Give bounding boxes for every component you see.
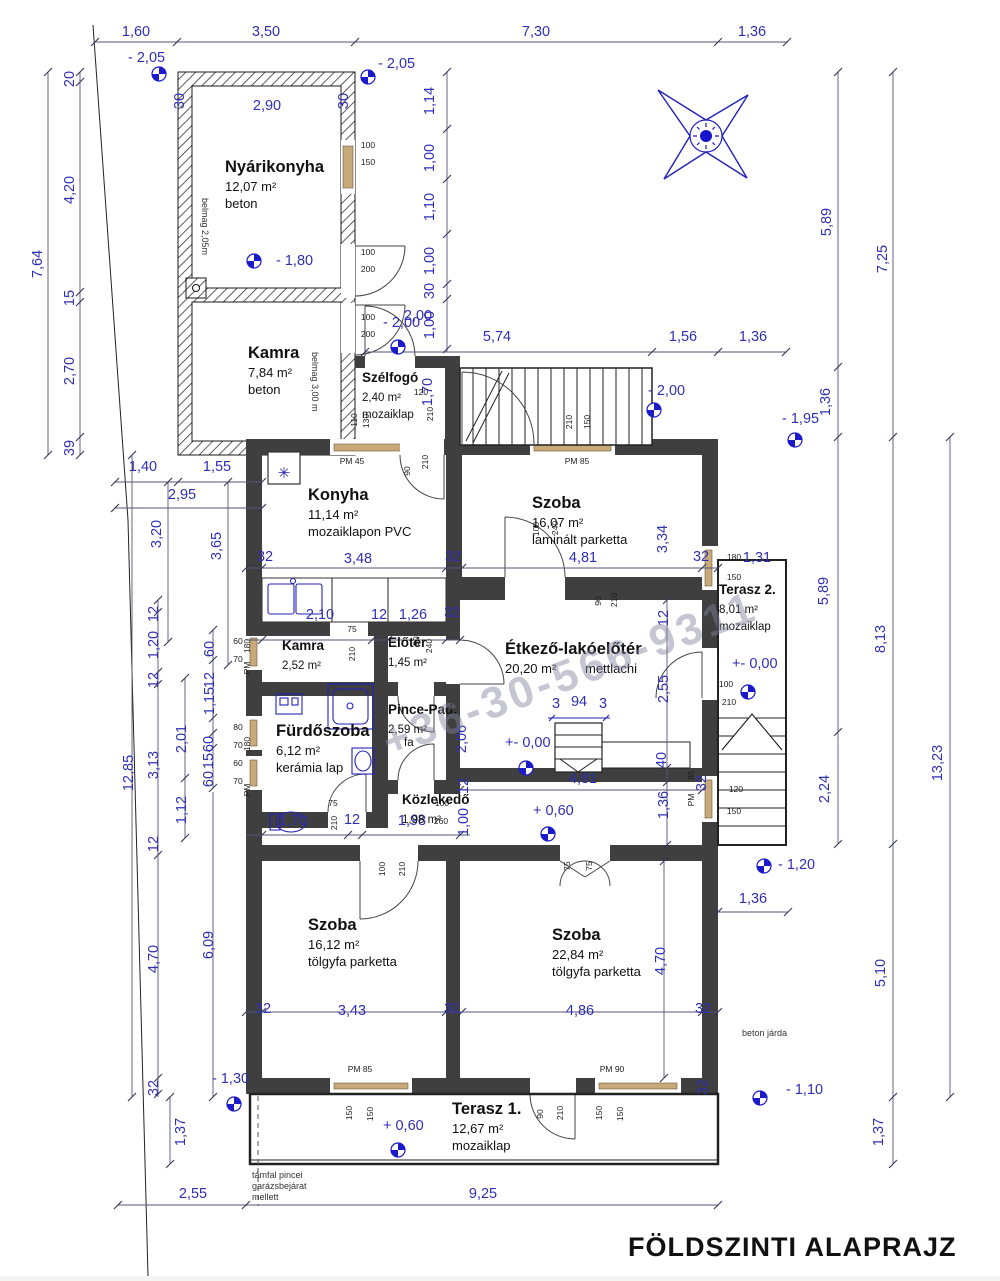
dim-label: 32 bbox=[444, 1001, 460, 1017]
opening-size-label: PM bbox=[242, 662, 252, 675]
dim-label: 1,36 bbox=[818, 388, 834, 416]
opening-size-label: 150 bbox=[727, 806, 741, 816]
level-label: + 0,60 bbox=[533, 803, 574, 819]
room-floor: mozaiklap bbox=[362, 409, 414, 421]
dim-label: 2,01 bbox=[174, 725, 190, 753]
opening-size-label: 75 bbox=[584, 861, 594, 871]
dim-label: 1,15 bbox=[202, 687, 218, 715]
dim-label: 20 bbox=[62, 71, 78, 87]
north-compass-icon bbox=[658, 90, 748, 179]
room-floor: kerámia lap bbox=[276, 760, 343, 775]
dim-label: 1,37 bbox=[173, 1118, 189, 1146]
opening-size-label: 120 bbox=[414, 387, 428, 397]
dim-label: 2,10 bbox=[306, 607, 334, 623]
dim-label: 32 bbox=[257, 549, 273, 565]
dim-label: 1,36 bbox=[739, 329, 767, 345]
room-label: Nyárikonyha12,07 m²beton bbox=[225, 158, 325, 211]
dim-label: 12 bbox=[344, 812, 360, 828]
note-text: belmag 2,05m bbox=[200, 198, 210, 255]
room-label: Szélfogó2,40 m²mozaiklap bbox=[362, 370, 418, 421]
dim-label: 12 bbox=[371, 607, 387, 623]
dim-label: 2,70 bbox=[62, 357, 78, 385]
room-name: Előtér bbox=[388, 635, 427, 650]
dim-label: 32 bbox=[255, 1001, 271, 1017]
level-symbol-icon bbox=[647, 403, 661, 417]
room-floor: beton bbox=[225, 196, 258, 211]
room-area: 16,12 m² bbox=[308, 937, 360, 952]
opening-size-label: 75 bbox=[328, 798, 338, 808]
dim-label: 60 bbox=[201, 771, 217, 787]
dim-label: 30 bbox=[172, 93, 188, 109]
dim-label: 2,55 bbox=[179, 1186, 207, 1202]
level-marker: + 0,60 bbox=[383, 1118, 424, 1157]
level-symbol-icon bbox=[247, 254, 261, 268]
dim-label: 60 bbox=[201, 736, 217, 752]
dim-label: 4,70 bbox=[146, 945, 162, 973]
opening-size-label: 100 bbox=[361, 312, 375, 322]
opening-size-label: PM 85 bbox=[348, 1064, 373, 1074]
opening-size-label: 180 bbox=[242, 737, 252, 751]
dim-label: 12 bbox=[146, 836, 162, 852]
opening-size-label: PM 85 bbox=[565, 456, 590, 466]
opening-size-label: 100 bbox=[719, 679, 733, 689]
window bbox=[334, 1083, 408, 1089]
dim-label: 3,34 bbox=[655, 525, 671, 553]
dim-label: 1,00 bbox=[456, 808, 472, 836]
level-symbol-icon bbox=[152, 67, 166, 81]
window bbox=[599, 1083, 677, 1089]
opening-size-label: 100 bbox=[361, 140, 375, 150]
opening-size-label: 120 bbox=[729, 784, 743, 794]
level-label: - 2,05 bbox=[378, 56, 415, 72]
dim-label: 1,10 bbox=[422, 193, 438, 221]
dim-label: 1,56 bbox=[669, 329, 697, 345]
dim-label: 32 bbox=[444, 605, 460, 621]
dim-label: 1,20 bbox=[146, 631, 162, 659]
dim-label: 40 bbox=[654, 752, 670, 768]
room-name: Szoba bbox=[308, 916, 357, 934]
dim-label: 7,25 bbox=[875, 245, 891, 273]
dim-label: 12 bbox=[146, 672, 162, 688]
dim-label: 32 bbox=[445, 549, 461, 565]
room-floor: tölgyfa parketta bbox=[308, 954, 398, 969]
door-opening bbox=[341, 244, 355, 298]
property-boundary-line bbox=[93, 25, 148, 1276]
opening-size-label: 210 bbox=[609, 593, 619, 607]
room-label: Előtér1,45 m² bbox=[388, 635, 427, 669]
dim-label: 1,26 bbox=[399, 607, 427, 623]
dim-label: 32 bbox=[695, 1079, 711, 1095]
opening-size-label: 180 bbox=[242, 639, 252, 653]
dim-label: 1,70 bbox=[279, 813, 307, 829]
level-marker: - 1,80 bbox=[247, 253, 313, 269]
dim-label: 3,48 bbox=[344, 551, 372, 567]
opening-size-label: 210 bbox=[397, 862, 407, 876]
dim-label: 1,40 bbox=[129, 459, 157, 475]
dim-label: 2,55 bbox=[656, 675, 672, 703]
level-marker: - 1,20 bbox=[757, 857, 815, 873]
hatched-wall bbox=[178, 72, 355, 455]
door-swing bbox=[360, 861, 418, 919]
level-symbol-icon bbox=[753, 1091, 767, 1105]
window bbox=[250, 760, 257, 786]
window bbox=[334, 444, 408, 451]
annotations: 1,603,507,301,367,64204,20152,70392,9030… bbox=[30, 24, 946, 1202]
level-marker: - 1,10 bbox=[753, 1082, 823, 1105]
opening-size-label: PM bbox=[686, 794, 696, 807]
level-symbol-icon bbox=[519, 761, 533, 775]
opening-size-label: 85 bbox=[686, 770, 696, 780]
room-label: Terasz 1.12,67 m²mozaiklap bbox=[452, 1100, 521, 1153]
opening-size-label: 90 bbox=[593, 596, 603, 606]
dim-label: 1,00 bbox=[422, 247, 438, 275]
page-title: FÖLDSZINTI ALAPRAJZ bbox=[628, 1232, 957, 1262]
level-label: - 2,05 bbox=[128, 50, 165, 66]
room-area: 7,84 m² bbox=[248, 365, 293, 380]
level-symbol-icon bbox=[788, 433, 802, 447]
dim-label: 3,50 bbox=[252, 24, 280, 40]
room-name: Fürdőszoba bbox=[276, 722, 370, 740]
door-opening bbox=[341, 303, 355, 353]
opening-size-label: PM 90 bbox=[600, 1064, 625, 1074]
room-area: 12,07 m² bbox=[225, 179, 277, 194]
opening-size-label: 200 bbox=[361, 264, 375, 274]
room-area: 2,52 m² bbox=[282, 660, 321, 672]
opening-size-label: 90 bbox=[535, 1109, 545, 1119]
level-label: +- 0,00 bbox=[732, 656, 778, 672]
opening-size-label: 110 bbox=[349, 413, 359, 427]
flue-icon bbox=[193, 285, 200, 292]
opening-size-label: 80 bbox=[233, 722, 243, 732]
dim-label: 5,89 bbox=[819, 208, 835, 236]
dim-label: 30 bbox=[336, 93, 352, 109]
dim-label: 4,86 bbox=[566, 1003, 594, 1019]
room-name: Terasz 1. bbox=[452, 1100, 521, 1118]
dim-label: 1,36 bbox=[739, 891, 767, 907]
room-name: Szoba bbox=[532, 494, 581, 512]
level-label: - 1,95 bbox=[782, 411, 819, 427]
level-symbol-icon bbox=[361, 70, 375, 84]
room-label: Szoba22,84 m²tölgyfa parketta bbox=[552, 926, 642, 979]
dim-label: 4,20 bbox=[62, 176, 78, 204]
exterior-staircase bbox=[460, 368, 652, 445]
room-name: Konyha bbox=[308, 486, 369, 504]
opening-size-label: 100 bbox=[361, 247, 375, 257]
dim-label: 12 bbox=[202, 672, 218, 688]
level-label: + 0,60 bbox=[383, 1118, 424, 1134]
stair-dim-line bbox=[548, 715, 610, 721]
dim-label: 15 bbox=[201, 753, 217, 769]
dim-label: 3,13 bbox=[146, 751, 162, 779]
room-label: Kamra2,52 m² bbox=[282, 638, 325, 672]
room-area: 6,12 m² bbox=[276, 743, 321, 758]
note-text: támfal pincei bbox=[252, 1170, 303, 1180]
dim-label: 32 bbox=[693, 549, 709, 565]
dim-label: 5,10 bbox=[873, 959, 889, 987]
opening-size-label: 150 bbox=[594, 1106, 604, 1120]
level-label: - 1,80 bbox=[276, 253, 313, 269]
level-label: - 1,30 bbox=[212, 1071, 249, 1087]
opening-size-label: 210 bbox=[329, 816, 339, 830]
dim-label: 4,81 bbox=[569, 771, 597, 787]
level-symbol-icon bbox=[541, 827, 555, 841]
dim-label: 60 bbox=[202, 641, 218, 657]
level-marker: - 1,30 bbox=[212, 1071, 249, 1111]
floor-plan-page: 1,603,507,301,367,64204,20152,70392,9030… bbox=[0, 0, 1000, 1276]
room-name: Kamra bbox=[282, 638, 325, 653]
dim-label: 7,30 bbox=[522, 24, 550, 40]
dim-label: 2,95 bbox=[168, 487, 196, 503]
room-floor: laminált parketta bbox=[532, 532, 628, 547]
dim-label: 5,89 bbox=[816, 577, 832, 605]
dim-label: 1,36 bbox=[656, 791, 672, 819]
dim-label: 3,43 bbox=[338, 1003, 366, 1019]
room-floor: mozaiklapon PVC bbox=[308, 524, 411, 539]
opening-size-label: 150 bbox=[727, 572, 741, 582]
level-label: - 1,10 bbox=[786, 1082, 823, 1098]
note-text: beton járda bbox=[742, 1028, 787, 1038]
level-symbol-icon bbox=[741, 685, 755, 699]
room-area: 12,67 m² bbox=[452, 1121, 504, 1136]
opening-size-label: 210 bbox=[420, 455, 430, 469]
room-label: Szoba16,07 m²laminált parketta bbox=[532, 494, 628, 547]
dim-label: 1,55 bbox=[203, 459, 231, 475]
bathroom-fixtures bbox=[270, 684, 374, 832]
dim-label: 1,00 bbox=[422, 144, 438, 172]
room-area: 11,14 m² bbox=[308, 507, 359, 522]
window bbox=[343, 146, 353, 188]
room-area: 2,40 m² bbox=[362, 392, 401, 404]
opening-size-label: 150 bbox=[365, 1107, 375, 1121]
opening-size-label: 150 bbox=[344, 1106, 354, 1120]
dim-label: 32 bbox=[694, 775, 710, 791]
note-text: mellett bbox=[252, 1192, 279, 1202]
dim-label: 6,09 bbox=[201, 931, 217, 959]
dim-label: 1,37 bbox=[871, 1118, 887, 1146]
room-label: Kamra7,84 m²beton bbox=[248, 344, 300, 397]
dim-label: 1,14 bbox=[422, 87, 438, 115]
dim-label: 30 bbox=[422, 283, 438, 299]
dim-label: 1,36 bbox=[738, 24, 766, 40]
chimney-star-icon: ✳ bbox=[278, 465, 291, 482]
room-area: 1,98 m² bbox=[402, 814, 441, 826]
opening-size-label: 210 bbox=[564, 415, 574, 429]
level-symbol-icon bbox=[391, 340, 405, 354]
room-name: Szoba bbox=[552, 926, 601, 944]
dim-label: 2,90 bbox=[253, 98, 281, 114]
level-symbol-icon bbox=[757, 859, 771, 873]
level-marker: - 1,95 bbox=[782, 411, 819, 447]
level-symbol-icon bbox=[227, 1097, 241, 1111]
room-name: Szélfogó bbox=[362, 370, 418, 385]
opening-size-label: 150 bbox=[361, 157, 375, 167]
dim-label: 32 bbox=[695, 1001, 711, 1017]
opening-size-label: 200 bbox=[361, 329, 375, 339]
dim-label: 15 bbox=[62, 290, 78, 306]
dim-label: 4,70 bbox=[653, 947, 669, 975]
note-text: garázsbejárat bbox=[252, 1181, 307, 1191]
opening-size-label: 100 bbox=[377, 862, 387, 876]
opening-size-label: 210 bbox=[555, 1106, 565, 1120]
room-name: Közlekedő bbox=[402, 792, 470, 807]
dim-label: 39 bbox=[62, 440, 78, 456]
dim-label: 5,74 bbox=[483, 329, 511, 345]
dim-label: 12,85 bbox=[121, 755, 137, 791]
dim-label: 3,65 bbox=[209, 532, 225, 560]
opening-size-label: 150 bbox=[615, 1107, 625, 1121]
room-area: 1,45 m² bbox=[388, 657, 427, 669]
dim-label: 12 bbox=[146, 606, 162, 622]
opening-size-label: 210 bbox=[425, 407, 435, 421]
dim-label: 1,60 bbox=[122, 24, 150, 40]
dim-label: 9,25 bbox=[469, 1186, 497, 1202]
room-label: Konyha11,14 m²mozaiklapon PVC bbox=[308, 486, 411, 539]
basement-stair bbox=[548, 715, 610, 772]
level-label: - 1,20 bbox=[778, 857, 815, 873]
room-floor: beton bbox=[248, 382, 281, 397]
level-label: - 2,00 bbox=[383, 315, 420, 331]
opening-size-label: 210 bbox=[722, 697, 736, 707]
level-label: - 2,00 bbox=[648, 383, 685, 399]
level-marker: + 0,60 bbox=[533, 803, 574, 841]
level-marker: - 2,05 bbox=[128, 50, 166, 81]
dim-label: 2,24 bbox=[817, 775, 833, 803]
dim-label: 7,64 bbox=[30, 250, 46, 278]
opening-size-label: 180 bbox=[727, 552, 741, 562]
room-name: Nyárikonyha bbox=[225, 158, 325, 176]
room-name: Kamra bbox=[248, 344, 300, 362]
opening-size-label: 150 bbox=[582, 415, 592, 429]
dim-label: 1,12 bbox=[174, 796, 190, 824]
room-area: 16,07 m² bbox=[532, 515, 584, 530]
room-area: 22,84 m² bbox=[552, 947, 604, 962]
opening-size-label: 75 bbox=[562, 861, 572, 871]
dim-label: 3,20 bbox=[149, 520, 165, 548]
opening-size-label: 75 bbox=[347, 624, 357, 634]
room-floor: tölgyfa parketta bbox=[552, 964, 642, 979]
note-text: belmag 3,00 m bbox=[310, 352, 320, 412]
opening-size-label: 60 bbox=[233, 758, 243, 768]
dim-label: 13,23 bbox=[930, 745, 946, 781]
dim-label: 4,81 bbox=[569, 550, 597, 566]
dim-label: 1,31 bbox=[743, 550, 771, 566]
opening-size-label: 210 bbox=[347, 647, 357, 661]
wall-niche bbox=[595, 742, 690, 768]
dim-label: 32 bbox=[146, 1080, 162, 1096]
level-marker: - 2,05 bbox=[361, 56, 415, 84]
opening-size-label: PM 45 bbox=[340, 456, 365, 466]
opening-size-label: PM bbox=[242, 784, 252, 797]
dim-label: 8,13 bbox=[873, 625, 889, 653]
room-label: Szoba16,12 m²tölgyfa parketta bbox=[308, 916, 398, 969]
level-symbol-icon bbox=[391, 1143, 405, 1157]
floor-plan-drawing: 1,603,507,301,367,64204,20152,70392,9030… bbox=[0, 0, 1000, 1276]
opening-size-label: 90 bbox=[402, 466, 412, 476]
dim-label: 3 bbox=[599, 696, 607, 712]
level-label: +- 0,00 bbox=[505, 735, 551, 751]
room-floor: mozaiklap bbox=[452, 1138, 511, 1153]
